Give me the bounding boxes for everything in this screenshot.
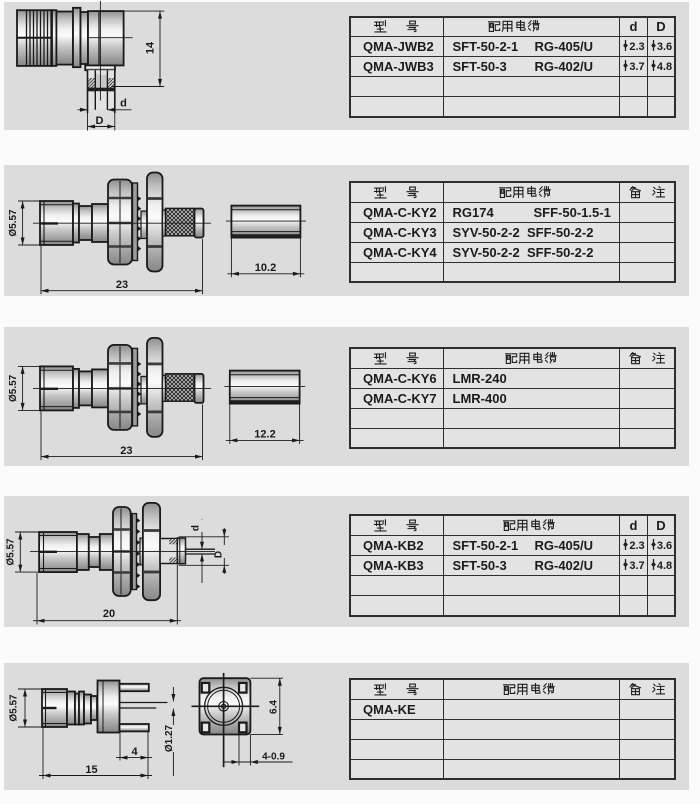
svg-text:15: 15: [85, 764, 97, 776]
svg-text:20: 20: [103, 608, 115, 620]
svg-text:23: 23: [116, 279, 128, 291]
svg-text:Ø1.27: Ø1.27: [164, 724, 175, 752]
svg-text:Ø5.57: Ø5.57: [8, 209, 19, 237]
svg-text:D: D: [96, 115, 104, 127]
svg-text:23: 23: [120, 445, 132, 457]
svg-text:6.4: 6.4: [269, 700, 280, 714]
svg-text:4-0.9: 4-0.9: [262, 752, 285, 763]
svg-text:Ø5.57: Ø5.57: [6, 538, 17, 566]
svg-text:d: d: [191, 525, 202, 531]
svg-text:D: D: [214, 551, 225, 558]
svg-text:4: 4: [131, 746, 138, 758]
svg-text:14: 14: [145, 41, 157, 54]
svg-text:12.2: 12.2: [254, 429, 275, 441]
svg-text:Ø5.57: Ø5.57: [8, 374, 19, 402]
svg-text:d: d: [120, 98, 127, 110]
svg-text:10.2: 10.2: [255, 262, 276, 274]
svg-text:Ø5.57: Ø5.57: [9, 694, 20, 722]
